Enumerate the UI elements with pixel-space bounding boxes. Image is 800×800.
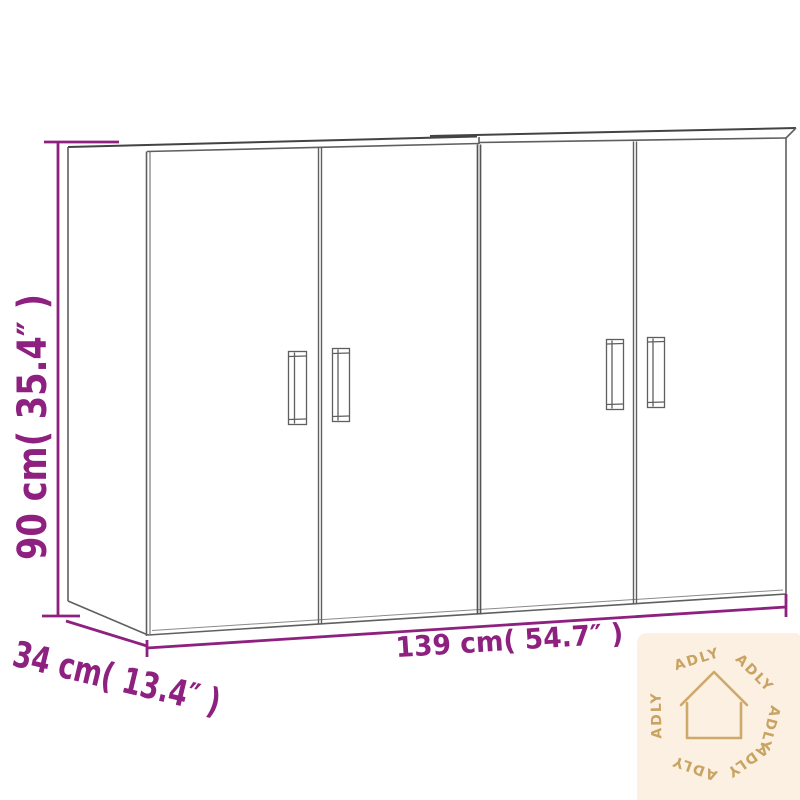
handle-left-door-2 — [333, 349, 350, 422]
door-divider-left-cabinet — [319, 148, 322, 625]
cabinet-top-right-corner — [786, 128, 796, 138]
depth-dimension-line — [66, 621, 147, 646]
width-dimension-label: 139 cm( 54.7″ ) — [395, 617, 625, 664]
cabinet-top-front-edge-right — [479, 138, 786, 143]
brand-name: ADLY — [649, 691, 666, 739]
cabinet-side-bottom-edge — [68, 601, 148, 635]
door-handles — [289, 338, 665, 425]
handle-left-door-1 — [289, 352, 307, 425]
cabinet-top-front-edge-left — [147, 144, 479, 152]
cabinet-outline — [68, 128, 796, 636]
dimension-lines — [42, 142, 786, 657]
brand-watermark: ADLY ADLY ADLY ADLY ADLY ADLY — [637, 633, 800, 800]
brand-name: ADLY — [670, 752, 720, 783]
cabinet-doors-bottom-line — [152, 590, 783, 631]
handle-right-door-2 — [648, 338, 665, 408]
house-outline-icon — [679, 670, 749, 740]
handle-right-door-1 — [607, 340, 624, 410]
depth-dimension-label: 34 cm( 13.4″ ) — [9, 634, 225, 723]
product-dimension-diagram: 90 cm( 35.4″ ) 34 cm( 13.4″ ) 139 cm( 54… — [0, 0, 800, 800]
door-divider-right-cabinet — [634, 142, 637, 605]
brand-name: ADLY — [723, 741, 771, 781]
height-dimension-label: 90 cm( 35.4″ ) — [10, 294, 56, 560]
cabinet-junction-divider — [478, 145, 481, 615]
